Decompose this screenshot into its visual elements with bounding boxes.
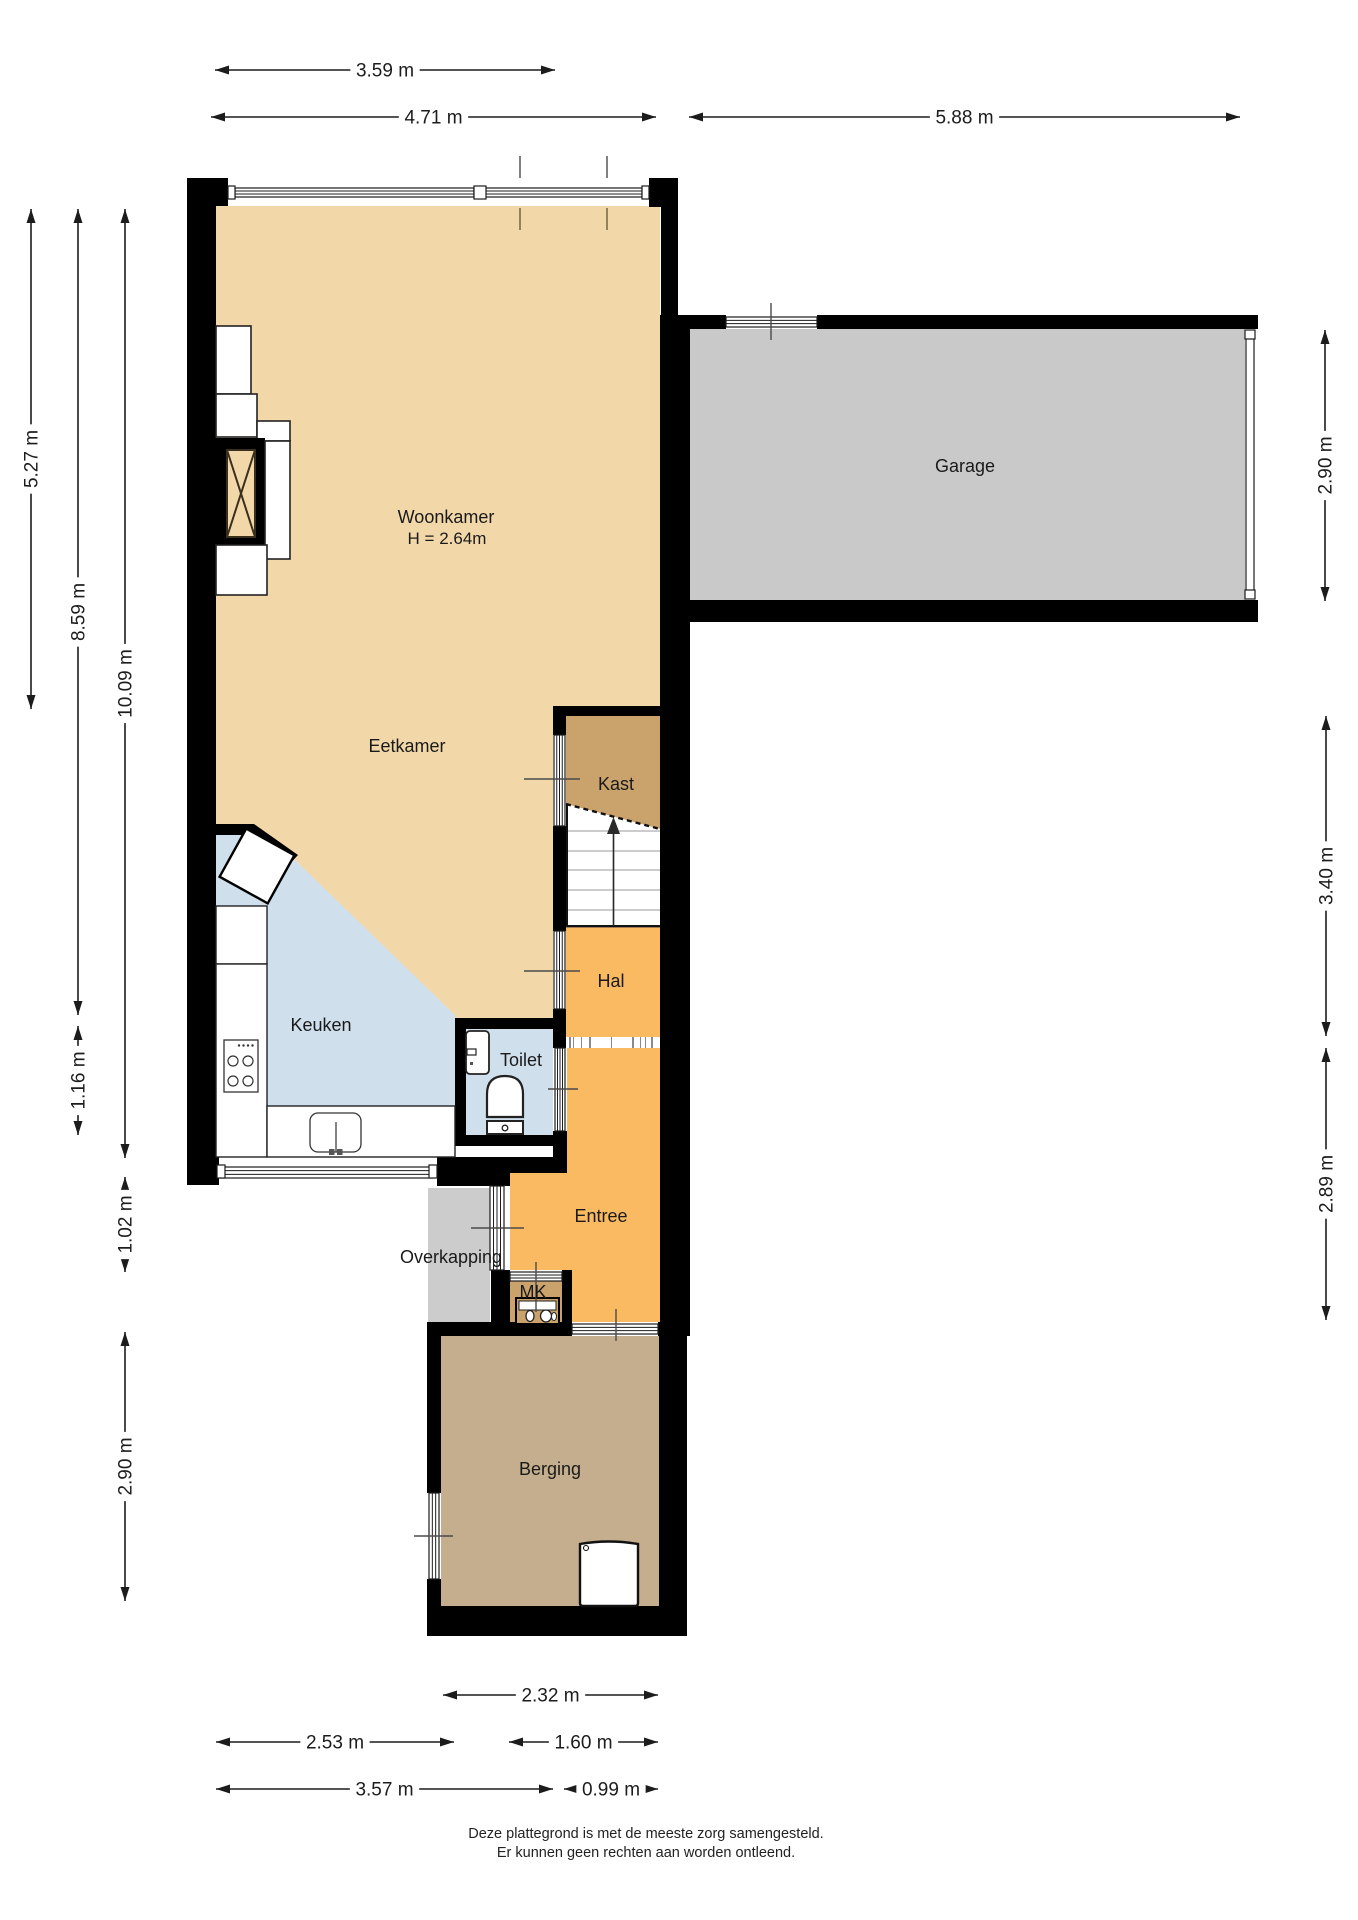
svg-text:Overkapping: Overkapping xyxy=(400,1247,502,1267)
svg-text:Er kunnen geen rechten aan wor: Er kunnen geen rechten aan worden ontlee… xyxy=(497,1845,795,1861)
svg-text:Garage: Garage xyxy=(935,456,995,476)
svg-text:1.60 m: 1.60 m xyxy=(554,1733,612,1754)
svg-text:Toilet: Toilet xyxy=(500,1050,542,1070)
svg-text:8.59 m: 8.59 m xyxy=(69,583,90,641)
svg-text:Eetkamer: Eetkamer xyxy=(368,736,445,756)
svg-text:3.40 m: 3.40 m xyxy=(1317,847,1338,905)
svg-text:5.27 m: 5.27 m xyxy=(22,430,43,488)
svg-text:2.32 m: 2.32 m xyxy=(521,1686,579,1707)
svg-text:3.59 m: 3.59 m xyxy=(356,61,414,82)
svg-text:4.71 m: 4.71 m xyxy=(404,108,462,129)
svg-text:Deze plattegrond is met de mee: Deze plattegrond is met de meeste zorg s… xyxy=(468,1826,823,1842)
svg-text:2.89 m: 2.89 m xyxy=(1317,1155,1338,1213)
svg-text:Entree: Entree xyxy=(574,1206,627,1226)
svg-text:1.16 m: 1.16 m xyxy=(69,1051,90,1109)
svg-text:0.99 m: 0.99 m xyxy=(582,1780,640,1801)
svg-text:2.90 m: 2.90 m xyxy=(1316,436,1337,494)
svg-text:H = 2.64m: H = 2.64m xyxy=(408,529,487,548)
svg-text:1.02 m: 1.02 m xyxy=(116,1195,137,1253)
svg-text:2.53 m: 2.53 m xyxy=(306,1733,364,1754)
svg-text:5.88 m: 5.88 m xyxy=(935,108,993,129)
svg-text:Woonkamer: Woonkamer xyxy=(398,507,495,527)
svg-text:10.09 m: 10.09 m xyxy=(116,649,137,718)
svg-text:MK: MK xyxy=(520,1282,547,1302)
svg-text:Berging: Berging xyxy=(519,1459,581,1479)
svg-text:Kast: Kast xyxy=(598,774,634,794)
svg-text:Hal: Hal xyxy=(597,971,624,991)
svg-text:Keuken: Keuken xyxy=(290,1015,351,1035)
svg-text:2.90 m: 2.90 m xyxy=(116,1437,137,1495)
svg-text:3.57 m: 3.57 m xyxy=(355,1780,413,1801)
